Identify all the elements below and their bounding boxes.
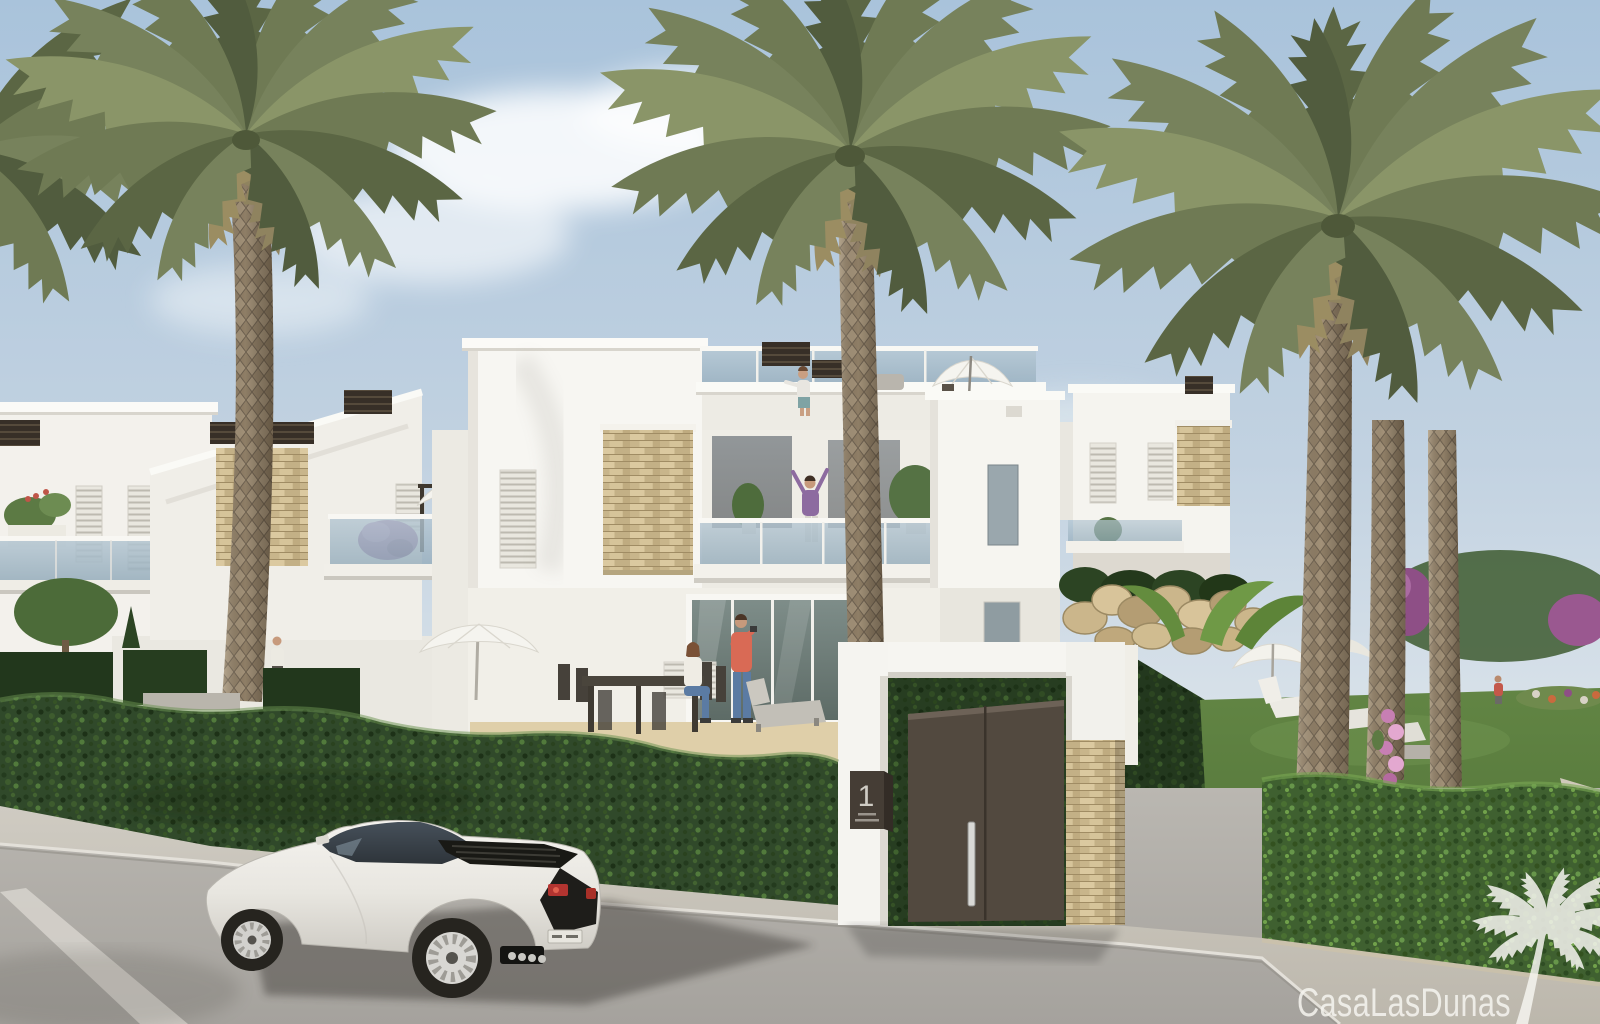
louver-window: [500, 470, 536, 568]
watermark-text: CasaLasDunas: [1297, 981, 1511, 1024]
scene-canvas: 1 C: [0, 0, 1600, 1024]
roof-vent: [1006, 406, 1022, 417]
roof-pergola: [0, 420, 40, 446]
roof-box: [1185, 376, 1213, 394]
tree: [14, 578, 118, 646]
roof-box: [762, 342, 810, 366]
louver-window: [1148, 443, 1173, 500]
building-right: [1059, 376, 1251, 613]
car-wheel-front: [221, 909, 283, 971]
stone-clad-panel: [603, 430, 693, 572]
gate-handle: [968, 822, 975, 906]
gate-number-plaque: 1: [850, 771, 893, 832]
flower-bed: [1516, 686, 1600, 710]
gate-pillar-right: [1066, 642, 1125, 742]
roof-pergola: [344, 390, 392, 414]
roof-box: [812, 360, 846, 378]
balcony-glass-railing: [0, 540, 168, 582]
balcony-glass-railing: [1068, 520, 1182, 542]
window: [988, 465, 1018, 545]
car-taillight: [586, 888, 596, 899]
rendered-photo: 1 C: [0, 0, 1600, 1024]
entrance-gate: 1: [838, 642, 1125, 962]
gate-shadow: [846, 925, 1120, 962]
louver-window: [1090, 443, 1116, 503]
stone-clad-panel: [1177, 426, 1230, 506]
car-wheel-rear: [412, 918, 492, 998]
gate-number: 1: [858, 780, 875, 813]
gate-door-split: [984, 706, 987, 920]
